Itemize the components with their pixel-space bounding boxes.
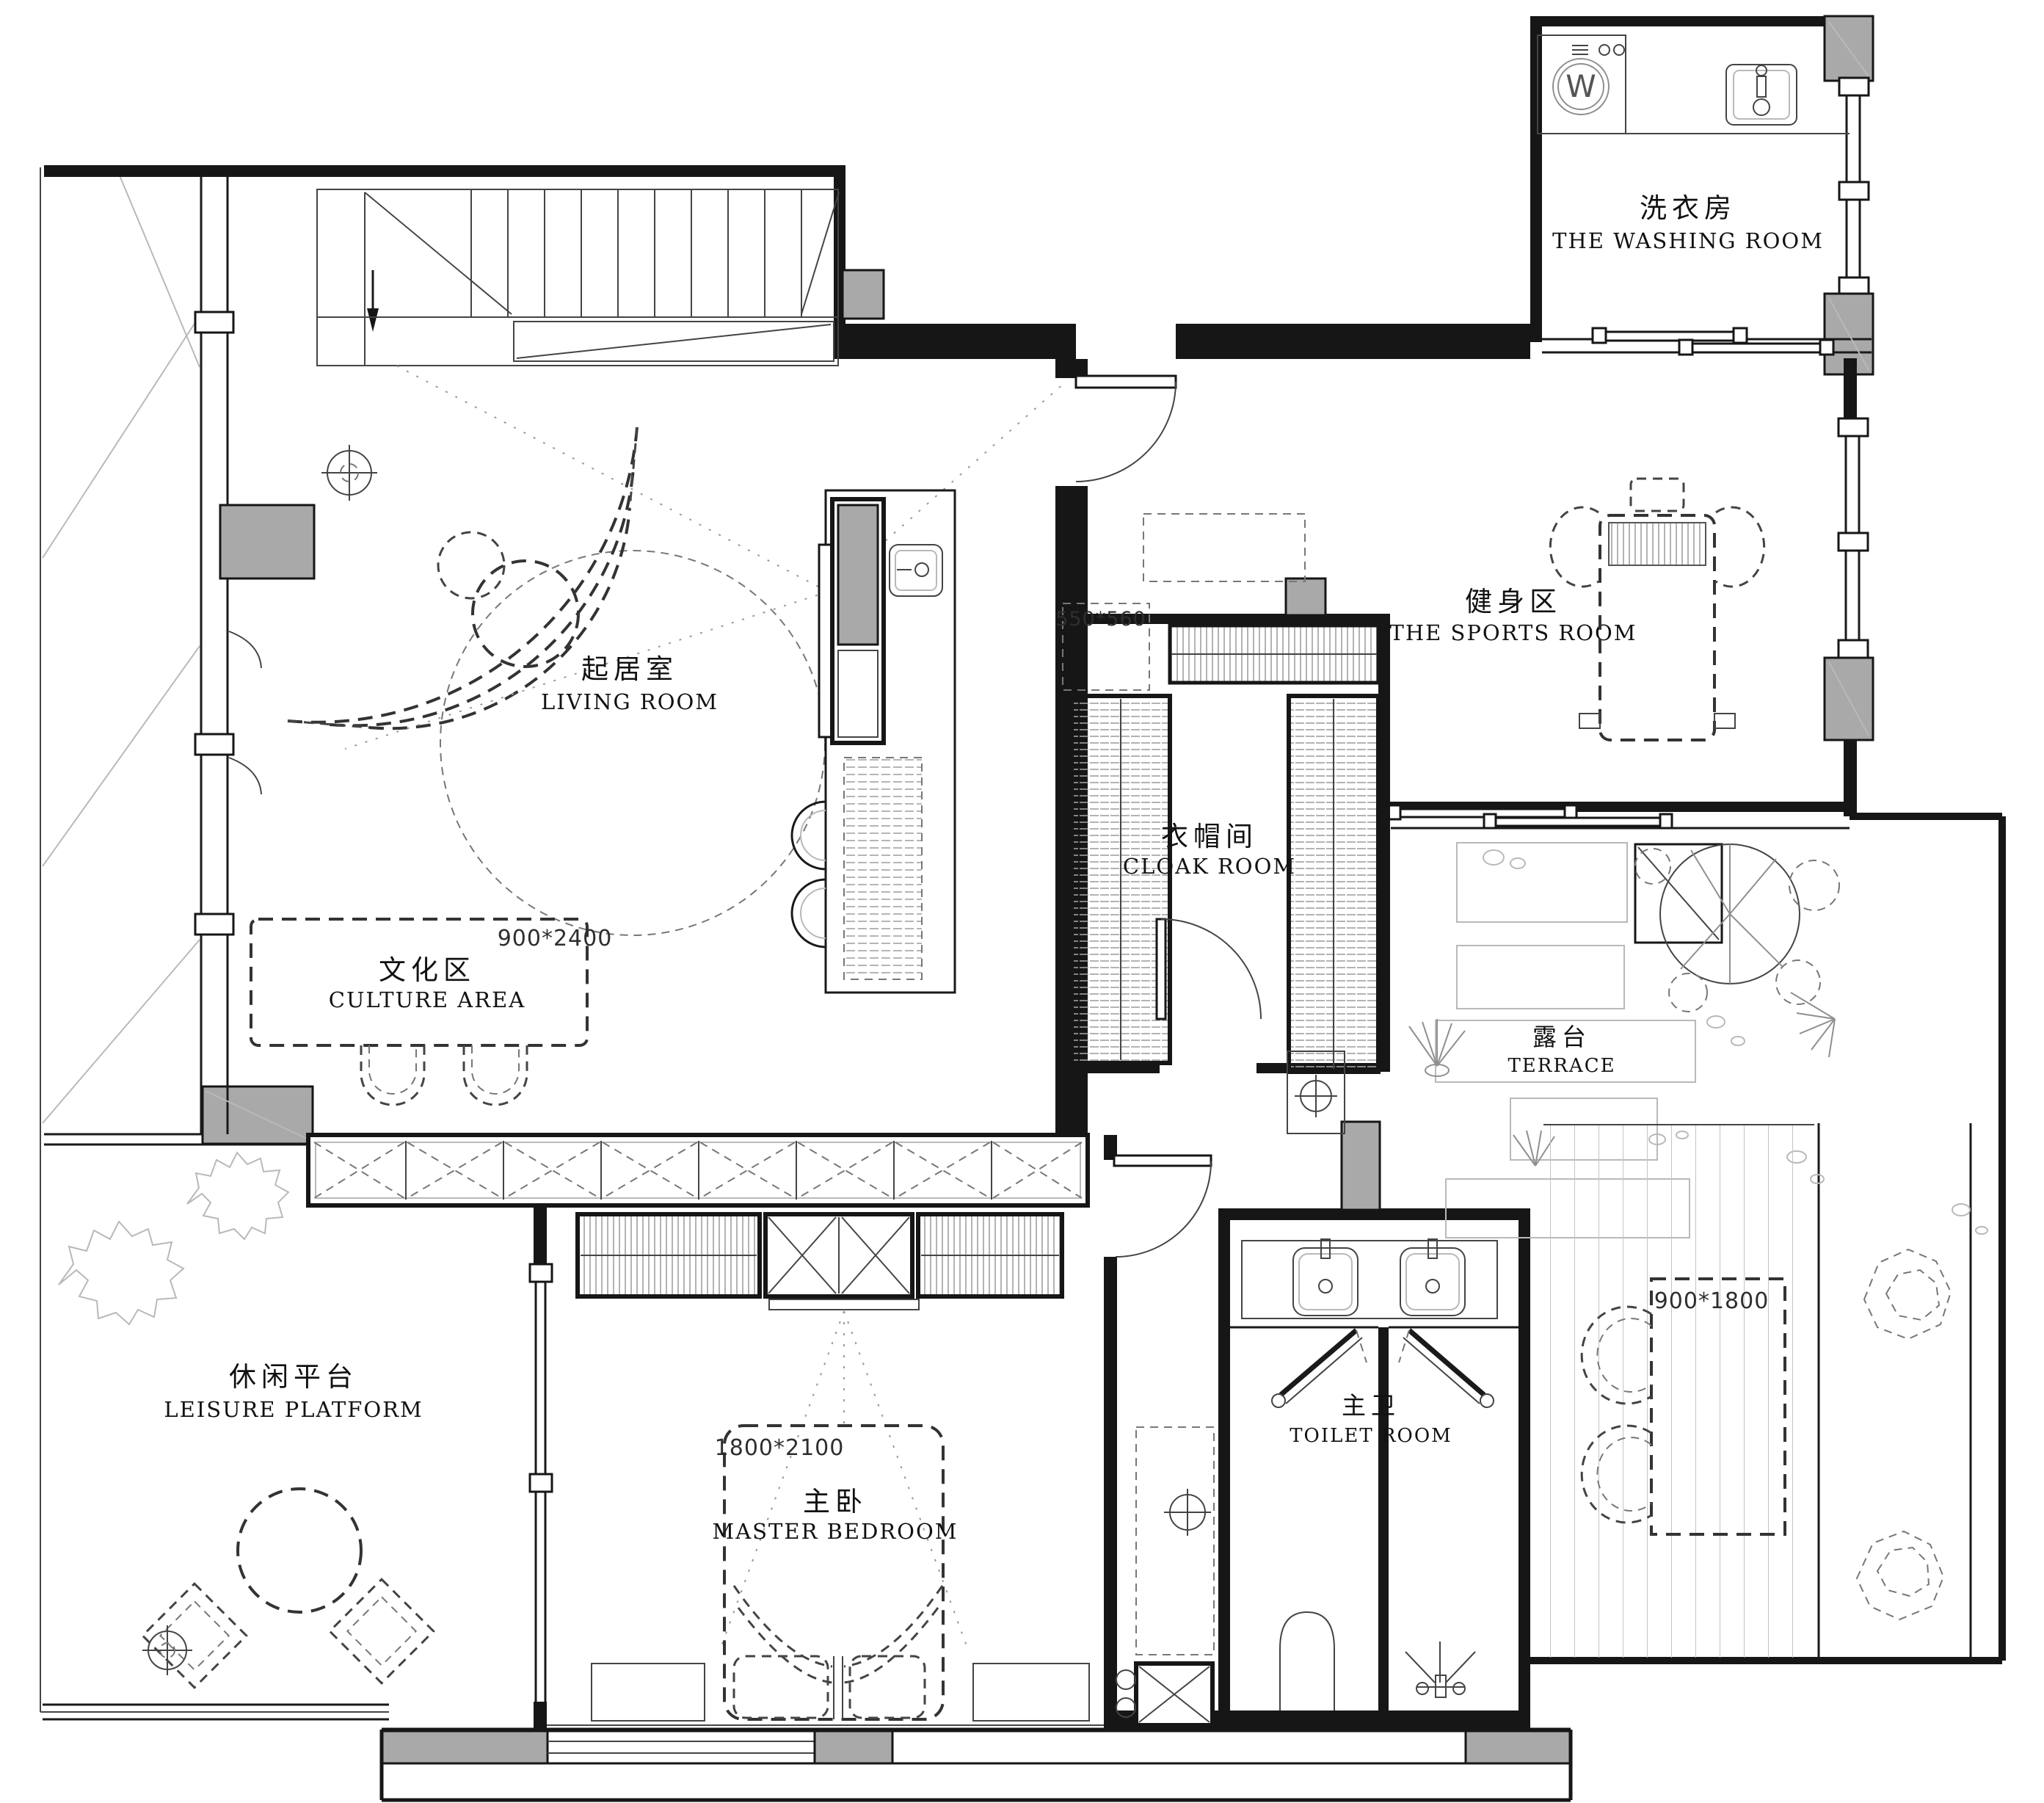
rail-end — [1679, 340, 1692, 355]
terrace-label-en: TERRACE — [1507, 1055, 1615, 1077]
vestibule — [1114, 1156, 1211, 1257]
planned-cabinet-dashed — [1136, 1427, 1214, 1655]
shrub-dashed-inner — [1886, 1270, 1939, 1320]
hall-basin-cross — [1295, 1075, 1337, 1117]
column-bottom-c — [1466, 1731, 1571, 1763]
leisure-table-dashed — [238, 1489, 361, 1612]
floor-lamp-cross — [321, 445, 377, 501]
leisure-label-en: LEISURE PLATFORM — [164, 1397, 423, 1422]
leisure-label-zh: 休闲平台 — [229, 1361, 358, 1393]
entry-door-leaf — [1076, 376, 1176, 388]
leisure-platform: 休闲平台 LEISURE PLATFORM — [59, 1153, 434, 1688]
window-mullion — [1839, 182, 1869, 200]
living-rug-dashed — [440, 551, 825, 935]
door-handle-icon — [1480, 1394, 1494, 1407]
rail-end — [1484, 814, 1496, 828]
yard-sketch-lines — [43, 170, 200, 1123]
faucet-stem — [1757, 76, 1766, 97]
culture-chair — [361, 1045, 424, 1105]
treadmill-arm-right — [1716, 507, 1764, 587]
cloak-room-label-en: CLOAK ROOM — [1123, 854, 1296, 879]
rail-end — [1389, 805, 1400, 819]
rail-end — [1820, 340, 1833, 355]
culture-area-label-en: CULTURE AREA — [329, 987, 525, 1012]
bar-stool — [792, 879, 826, 947]
culture-chair — [464, 1045, 527, 1105]
cloak-door-swing — [1161, 919, 1261, 1019]
window-mullion — [1838, 533, 1868, 551]
rail-end — [1593, 328, 1606, 343]
treadmill-console-dashed — [1631, 479, 1684, 511]
wall-top-living — [44, 165, 845, 177]
living-room-label-zh: 起居室 — [581, 653, 678, 685]
stair-landing — [317, 317, 838, 366]
pillow — [850, 1656, 925, 1718]
living-room-label-en: LIVING ROOM — [541, 689, 719, 714]
column-bath-nw — [1342, 1122, 1380, 1210]
master-bedroom-label-zh: 主卧 — [803, 1486, 868, 1517]
nightstand — [973, 1664, 1089, 1721]
sports-room: 健身区 THE SPORTS ROOM — [1389, 479, 1764, 740]
washer-controls-icon — [1572, 46, 1588, 54]
wall-sports-east-a — [1844, 358, 1857, 420]
plant-fan — [1409, 1019, 1465, 1066]
rail-end — [1660, 814, 1672, 828]
wall-corridor-top-right — [1176, 324, 1530, 359]
sink-drain-icon — [1426, 1280, 1439, 1293]
plant-fan — [1791, 993, 1835, 1057]
terrace-label-zh: 露台 — [1532, 1023, 1591, 1051]
entry-door — [1076, 376, 1305, 581]
exterior-yard — [40, 167, 389, 1712]
niche-dim: 550*560 — [1055, 608, 1146, 631]
wall-stall-divider — [1378, 1327, 1389, 1711]
column-bottom-a — [382, 1731, 548, 1763]
stair-break-lines — [365, 192, 839, 366]
shower-knob-icon — [1416, 1683, 1428, 1694]
wall-bottom-plain — [892, 1731, 1466, 1763]
column-bottom-b — [815, 1731, 892, 1763]
site-boundary — [40, 167, 389, 1712]
entry-door-swing — [1076, 382, 1176, 482]
washer-icon: W — [1565, 68, 1596, 104]
stairs — [317, 189, 839, 366]
valve-icon — [1116, 1670, 1135, 1689]
stall-door-left — [1281, 1330, 1356, 1395]
deck-planks — [1543, 1125, 1815, 1658]
nightstand — [592, 1664, 705, 1721]
casement-ticks — [229, 631, 261, 794]
treadmill-foot — [1714, 714, 1735, 728]
cloak-door-leaf — [1157, 919, 1165, 1019]
column-living-west — [220, 505, 314, 578]
basin-cross — [1164, 1489, 1211, 1536]
tree-sketch — [187, 1153, 288, 1239]
wall-washing-top — [1530, 16, 1872, 26]
culture-chair-inner — [369, 1045, 416, 1094]
vanity-sink-inner — [1406, 1254, 1459, 1310]
treadmill-arm-left — [1550, 507, 1599, 587]
washer-knob-icon — [1599, 45, 1610, 55]
sports-room-label-zh: 健身区 — [1465, 586, 1562, 617]
stair-well — [317, 189, 838, 317]
stall-door-right — [1409, 1330, 1484, 1395]
floor-plan-svg: W 洗衣房 THE WASHING ROOM 起居室 LIVING ROOM 9… — [0, 0, 2044, 1803]
stair-handrail-diagonal — [517, 324, 831, 358]
laundry-sink-inner — [1734, 70, 1789, 119]
tree-sketch — [59, 1222, 183, 1324]
floor-plan-page: W 洗衣房 THE WASHING ROOM 起居室 LIVING ROOM 9… — [0, 0, 2044, 1803]
cloak-room: 550*560 衣帽间 CLOAK ROOM — [1055, 603, 1378, 1133]
washing-room: W 洗衣房 THE WASHING ROOM — [1538, 35, 1850, 253]
bar-stool-inner — [801, 810, 826, 860]
window-mullion — [530, 1474, 552, 1492]
culture-table-dim: 900*2400 — [498, 926, 613, 951]
entry-cabinet-dashed — [1143, 514, 1305, 581]
culture-chair-inner — [472, 1045, 519, 1094]
ottoman-small-dashed — [438, 532, 504, 598]
sink-drain-icon — [1319, 1280, 1332, 1293]
rail-end — [1734, 328, 1747, 343]
washer-knob-icon — [1614, 45, 1624, 55]
floor-grille-dashed — [844, 758, 922, 979]
side-table-cross — [142, 1625, 192, 1675]
culture-area-label-zh: 文化区 — [379, 954, 476, 986]
tree-leaves — [1669, 973, 1707, 1012]
wall-bedroom-east-b — [1104, 1257, 1117, 1762]
window-mullion — [1838, 418, 1868, 436]
toilet-room-label-zh: 主卫 — [1342, 1391, 1400, 1420]
window-mullion — [1838, 640, 1868, 658]
bed-throw-arcs — [734, 1586, 942, 1683]
column-cloak-ne — [1286, 578, 1325, 615]
pillow — [734, 1656, 828, 1718]
bedroom-door-leaf — [1114, 1156, 1211, 1166]
leisure-chair — [330, 1579, 433, 1683]
window-mullion — [1839, 277, 1869, 295]
leisure-chair — [142, 1583, 246, 1687]
vanity-sink-inner — [1299, 1254, 1352, 1310]
window-mullion — [195, 312, 233, 333]
stall-door-right-b — [1403, 1338, 1480, 1404]
toilet-room: 主卫 TOILET ROOM — [1116, 1239, 1519, 1725]
deck: 900*1800 — [1543, 1125, 1951, 1658]
plant-base — [1425, 1064, 1449, 1076]
sliding-door-rail — [1687, 344, 1826, 352]
window-bedroom-south — [548, 1731, 815, 1763]
down-arrow-icon — [367, 308, 379, 332]
treadmill-roller — [1609, 523, 1706, 565]
tv-screen — [769, 1299, 919, 1310]
wall-washing-left — [1530, 16, 1542, 342]
ottoman-large-dashed — [473, 561, 578, 667]
island-faucet-icon — [915, 563, 928, 576]
wall-bath-west — [1218, 1208, 1230, 1730]
washing-room-label-en: THE WASHING ROOM — [1552, 228, 1824, 253]
shrub-dashed-inner — [1877, 1548, 1929, 1596]
sliding-door-rail — [1600, 332, 1739, 341]
column-stair — [843, 270, 884, 319]
window-mullion — [530, 1264, 552, 1282]
sliding-door-rail — [1490, 818, 1666, 826]
bed-dim: 1800*2100 — [715, 1435, 845, 1461]
living-room: 起居室 LIVING ROOM — [288, 366, 1066, 993]
shower-knob-icon — [1453, 1683, 1465, 1694]
bed-center-split — [834, 1656, 843, 1719]
window-mullion — [195, 914, 233, 935]
stepping-stone — [1457, 843, 1627, 922]
bar-stool — [792, 802, 826, 869]
washing-room-label-zh: 洗衣房 — [1640, 192, 1736, 224]
tree-leaves — [1789, 860, 1839, 910]
wall-corridor-top-left — [834, 324, 1076, 359]
toilet-icon — [1280, 1612, 1334, 1711]
stair-treads — [471, 189, 801, 317]
door-handle-icon — [1272, 1394, 1285, 1407]
cloak-room-label-zh: 衣帽间 — [1161, 821, 1258, 852]
media-screen — [838, 505, 878, 645]
bar-stool-inner — [801, 888, 826, 938]
deck-table-dim: 900*1800 — [1654, 1288, 1770, 1314]
window-mullion — [195, 734, 233, 755]
stepping-stone — [1457, 946, 1624, 1009]
master-bedroom-label-en: MASTER BEDROOM — [713, 1519, 959, 1544]
treadmill-foot — [1579, 714, 1600, 728]
window-mullion — [1839, 78, 1869, 95]
bedroom-door-swing — [1116, 1161, 1211, 1257]
sink-drain-icon — [1753, 99, 1770, 115]
toilet-room-label-en: TOILET ROOM — [1290, 1425, 1452, 1447]
wall-bath-east — [1519, 1208, 1530, 1730]
shower-icon — [1405, 1641, 1475, 1687]
culture-area: 900*2400 文化区 CULTURE AREA — [251, 919, 612, 1105]
shrub-dashed — [1857, 1531, 1943, 1619]
sliding-door-rail — [1394, 809, 1571, 817]
